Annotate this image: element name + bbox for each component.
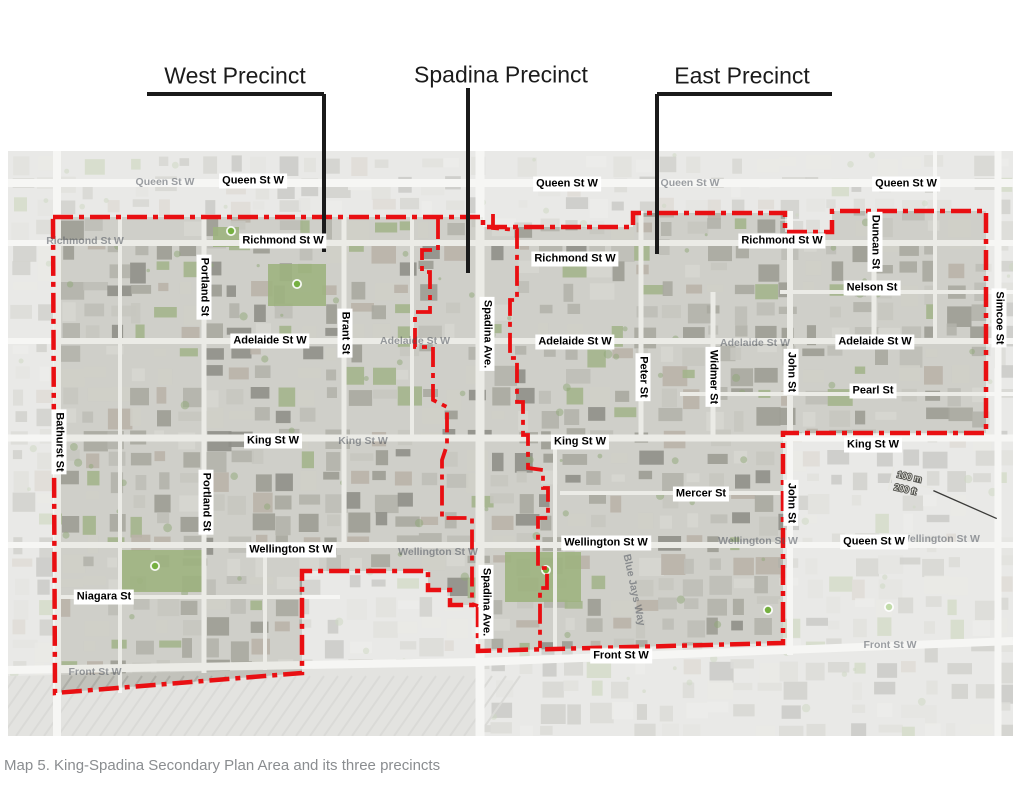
basemap-street-label: Richmond St W xyxy=(46,235,124,247)
street-label: Mercer St xyxy=(673,487,729,502)
street-label: King St W xyxy=(551,435,609,450)
street-label: Queen St W xyxy=(840,535,908,550)
spadina-precinct-title: Spadina Precinct xyxy=(414,62,588,89)
street-label: Wellington St W xyxy=(246,543,336,558)
street-label-vertical: Spadina Ave. xyxy=(479,565,494,639)
street-label: Adelaide St W xyxy=(230,334,309,349)
map-caption: Map 5. King-Spadina Secondary Plan Area … xyxy=(4,757,440,774)
basemap-street-label: King St W xyxy=(338,435,388,447)
park-area xyxy=(505,552,581,602)
street-label-vertical: Peter St xyxy=(636,353,651,401)
street-label-vertical: Duncan St xyxy=(868,212,883,272)
street-label-vertical: Bathurst St xyxy=(52,409,67,474)
street-label: Queen St W xyxy=(219,174,287,189)
street-label-vertical: Portland St xyxy=(197,255,212,320)
street-label: Adelaide St W xyxy=(535,335,614,350)
basemap-street-label: Adelaide St W xyxy=(720,337,790,349)
street-label: Queen St W xyxy=(872,177,940,192)
street-label: King St W xyxy=(244,434,302,449)
street-label: Richmond St W xyxy=(738,234,825,249)
east-precinct-title: East Precinct xyxy=(674,63,810,90)
street-label-vertical: Spadina Ave. xyxy=(480,297,495,371)
street-label: Front St W xyxy=(590,649,652,664)
street-label: Pearl St xyxy=(850,384,897,399)
street-label-vertical: Portland St xyxy=(199,470,214,535)
street-label-vertical: Simcoe St xyxy=(992,288,1007,347)
basemap-street-label: Front St W xyxy=(68,666,121,678)
street-label: King St W xyxy=(844,438,902,453)
basemap-street-label: Wellington St W xyxy=(718,535,798,547)
street-label: Wellington St W xyxy=(561,536,651,551)
west-precinct-title: West Precinct xyxy=(164,63,305,90)
park-area xyxy=(118,550,202,592)
street-label: Richmond St W xyxy=(531,252,618,267)
street-label: Niagara St xyxy=(74,590,134,605)
street-label-vertical: Widmer St xyxy=(706,347,721,407)
basemap-street-label: Wellington St W xyxy=(398,546,478,558)
street-label-vertical: John St xyxy=(784,349,799,395)
street-label-vertical: Brant St xyxy=(338,309,353,358)
street-label-vertical: John St xyxy=(784,480,799,526)
basemap-street-label: Wellington St W xyxy=(900,533,980,545)
basemap-street-label: Adelaide St W xyxy=(380,335,450,347)
street-label: Adelaide St W xyxy=(835,335,914,350)
street-label: Nelson St xyxy=(844,281,901,296)
map-page: 100 m200 ft West Precinct Spadina Precin… xyxy=(0,0,1022,792)
basemap-street-label: Front St W xyxy=(863,639,916,651)
street-label: Queen St W xyxy=(533,177,601,192)
basemap-street-label: Queen St W xyxy=(136,176,195,188)
basemap-street-label: Queen St W xyxy=(661,177,720,189)
street-label: Richmond St W xyxy=(239,234,326,249)
